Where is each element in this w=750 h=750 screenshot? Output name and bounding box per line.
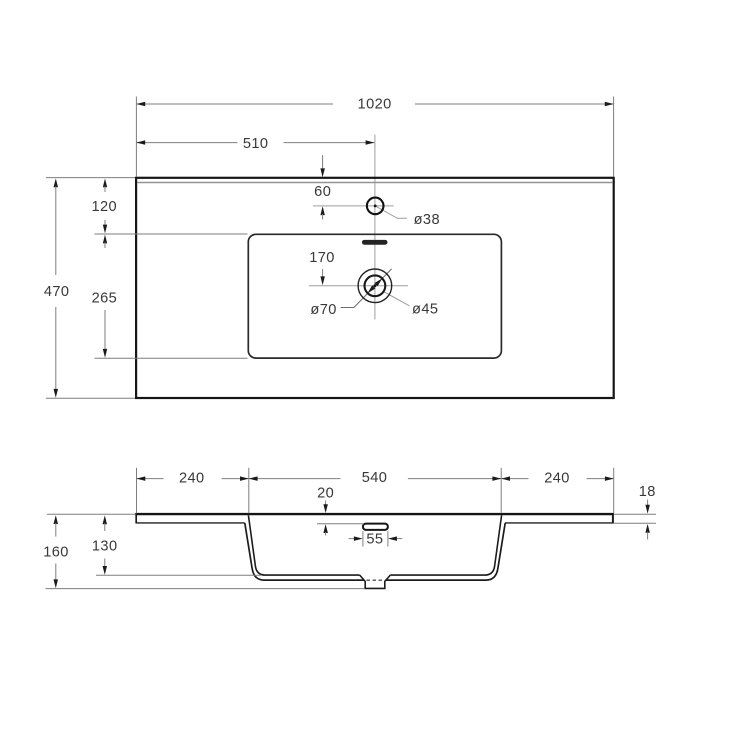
svg-text:240: 240	[544, 471, 570, 487]
svg-text:265: 265	[92, 291, 118, 307]
svg-text:18: 18	[639, 484, 656, 500]
svg-text:240: 240	[179, 471, 205, 487]
svg-text:ø70: ø70	[310, 302, 336, 318]
svg-text:160: 160	[43, 545, 69, 561]
svg-text:1020: 1020	[358, 97, 392, 113]
svg-text:ø38: ø38	[414, 212, 440, 228]
svg-text:540: 540	[362, 470, 388, 486]
svg-text:510: 510	[243, 136, 269, 152]
svg-text:20: 20	[317, 485, 334, 501]
svg-text:55: 55	[366, 531, 383, 547]
svg-text:ø45: ø45	[412, 302, 438, 318]
svg-text:130: 130	[92, 539, 118, 555]
svg-text:470: 470	[44, 284, 70, 300]
svg-text:60: 60	[314, 184, 331, 200]
svg-text:170: 170	[309, 250, 335, 266]
svg-text:120: 120	[92, 199, 118, 215]
